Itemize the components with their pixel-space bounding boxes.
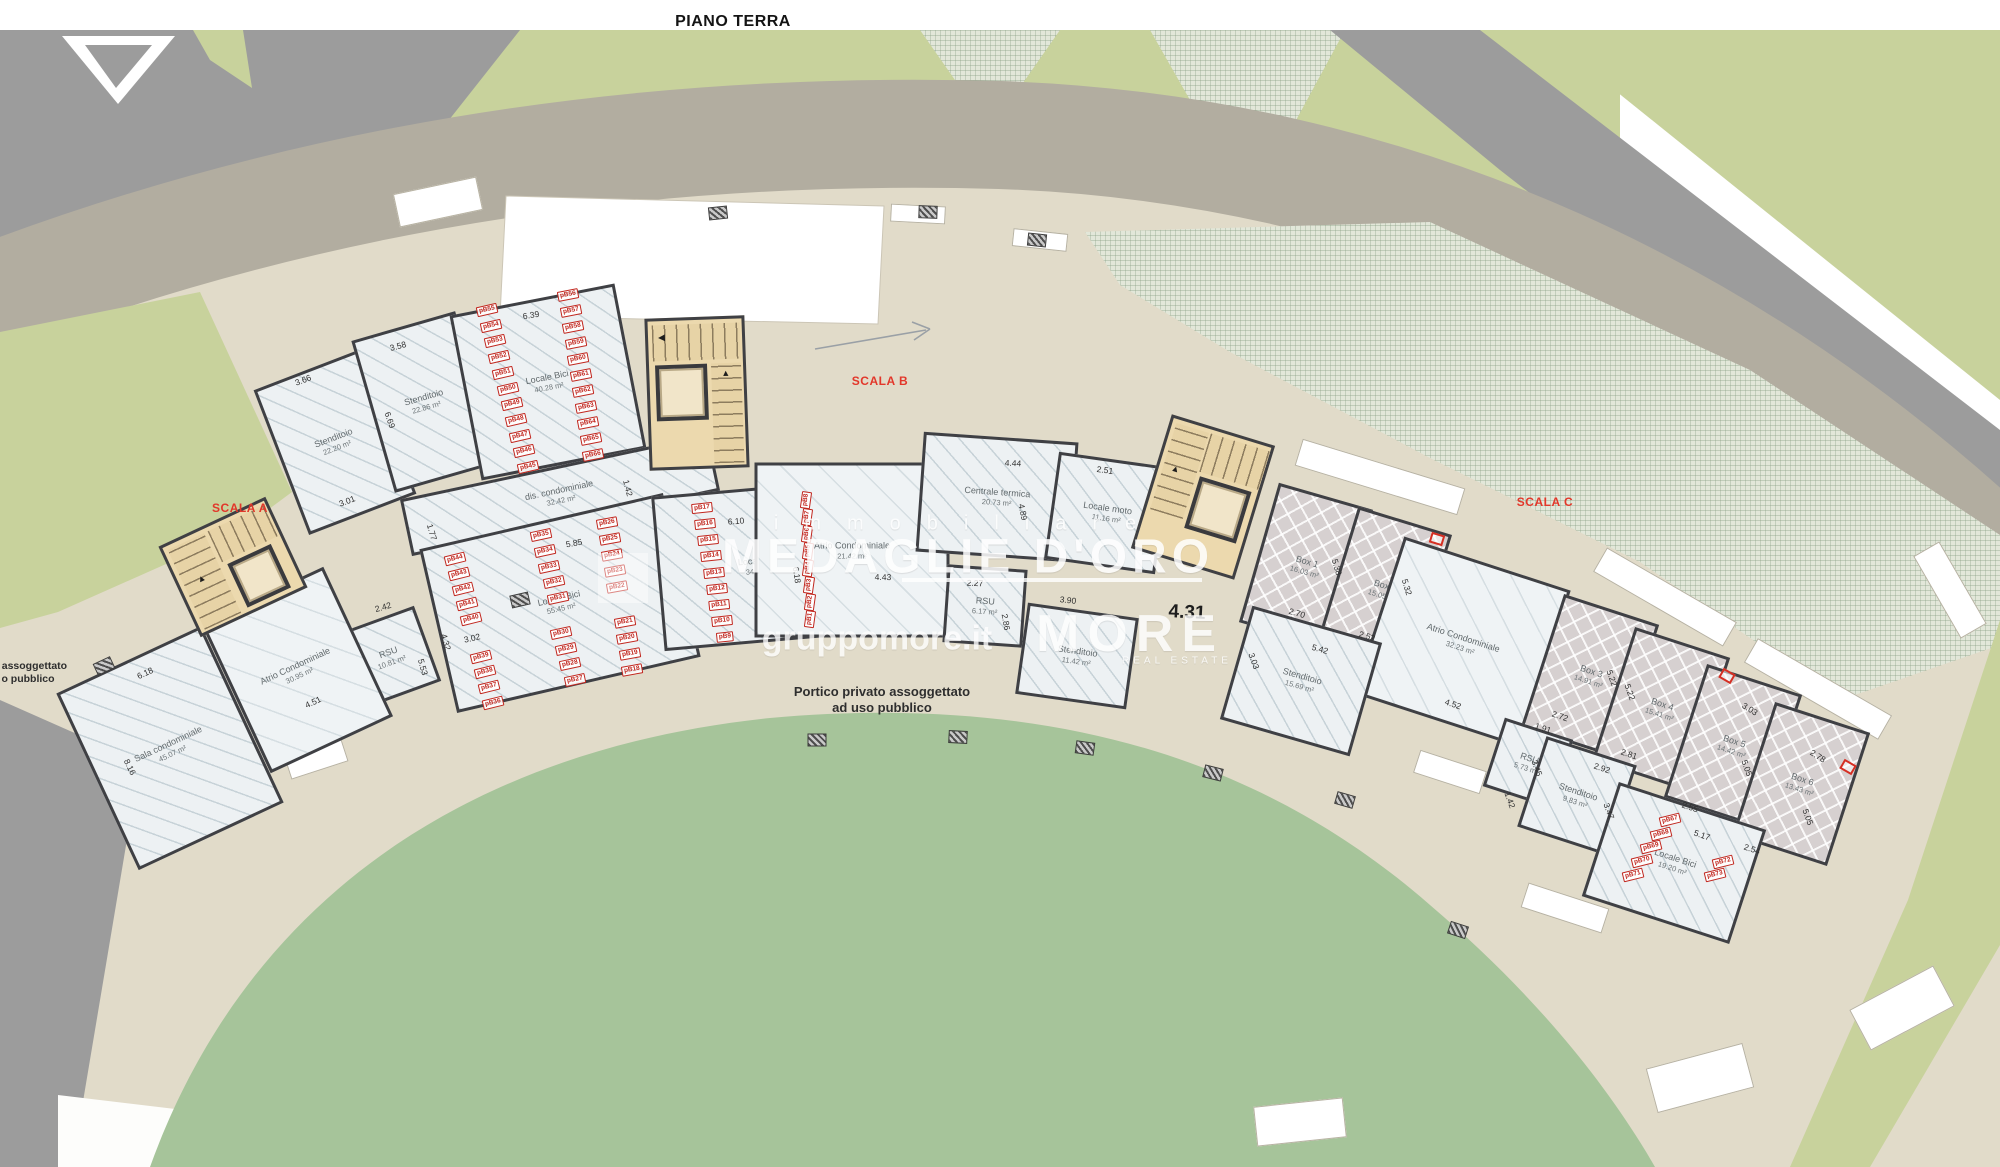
edge-note: to assoggettato o pubblico: [0, 660, 67, 686]
watermark-logo-mark: [598, 553, 648, 603]
portico-note: Portico privato assoggettato ad uso pubb…: [794, 684, 970, 716]
dimension-label: 6.10: [727, 515, 744, 526]
edge-note-line1: to assoggettato: [0, 660, 67, 673]
watermark-site: gruppomore.it: [762, 620, 992, 659]
watermark-brand-sub: REAL ESTATE: [1122, 656, 1232, 667]
watermark-brand-title: MEDAGLIE D'ORO: [722, 530, 1214, 585]
portico-note-line1: Portico privato assoggettato: [794, 684, 970, 700]
bike-stall-label: pB11: [708, 599, 729, 611]
drain-grate: [708, 206, 728, 221]
bike-stall-label: pB9: [716, 631, 734, 643]
stair-title: SCALA B: [852, 374, 908, 388]
stair-direction-arrow: ◀: [658, 333, 665, 342]
drain-grate: [1027, 233, 1047, 248]
drain-grate: [808, 734, 827, 747]
drain-grate: [918, 205, 937, 219]
portico-note-line2: ad uso pubblico: [794, 700, 970, 716]
floor-plan-canvas: Stenditoio 22.20 m² Stenditoio 22.86 m² …: [0, 0, 2000, 1167]
drain-grate: [948, 730, 968, 744]
watermark-underline: [902, 578, 1202, 582]
page-title: PIANO TERRA: [675, 13, 791, 31]
room-area: 20.73 m²: [982, 497, 1012, 508]
drain-grate: [1075, 740, 1096, 756]
dimension-label: 4.44: [1004, 458, 1021, 469]
room-area: 6.17 m²: [972, 606, 998, 617]
elevator-shaft: [655, 364, 709, 422]
stairwell-b: ◀ ▲: [644, 315, 749, 470]
stair-title: SCALA A: [212, 501, 268, 515]
edge-note-line2: o pubblico: [0, 673, 67, 686]
stair-title: SCALA C: [1517, 495, 1573, 509]
stair-direction-arrow: ▲: [721, 369, 730, 378]
dimension-label: 2.51: [1096, 464, 1114, 476]
